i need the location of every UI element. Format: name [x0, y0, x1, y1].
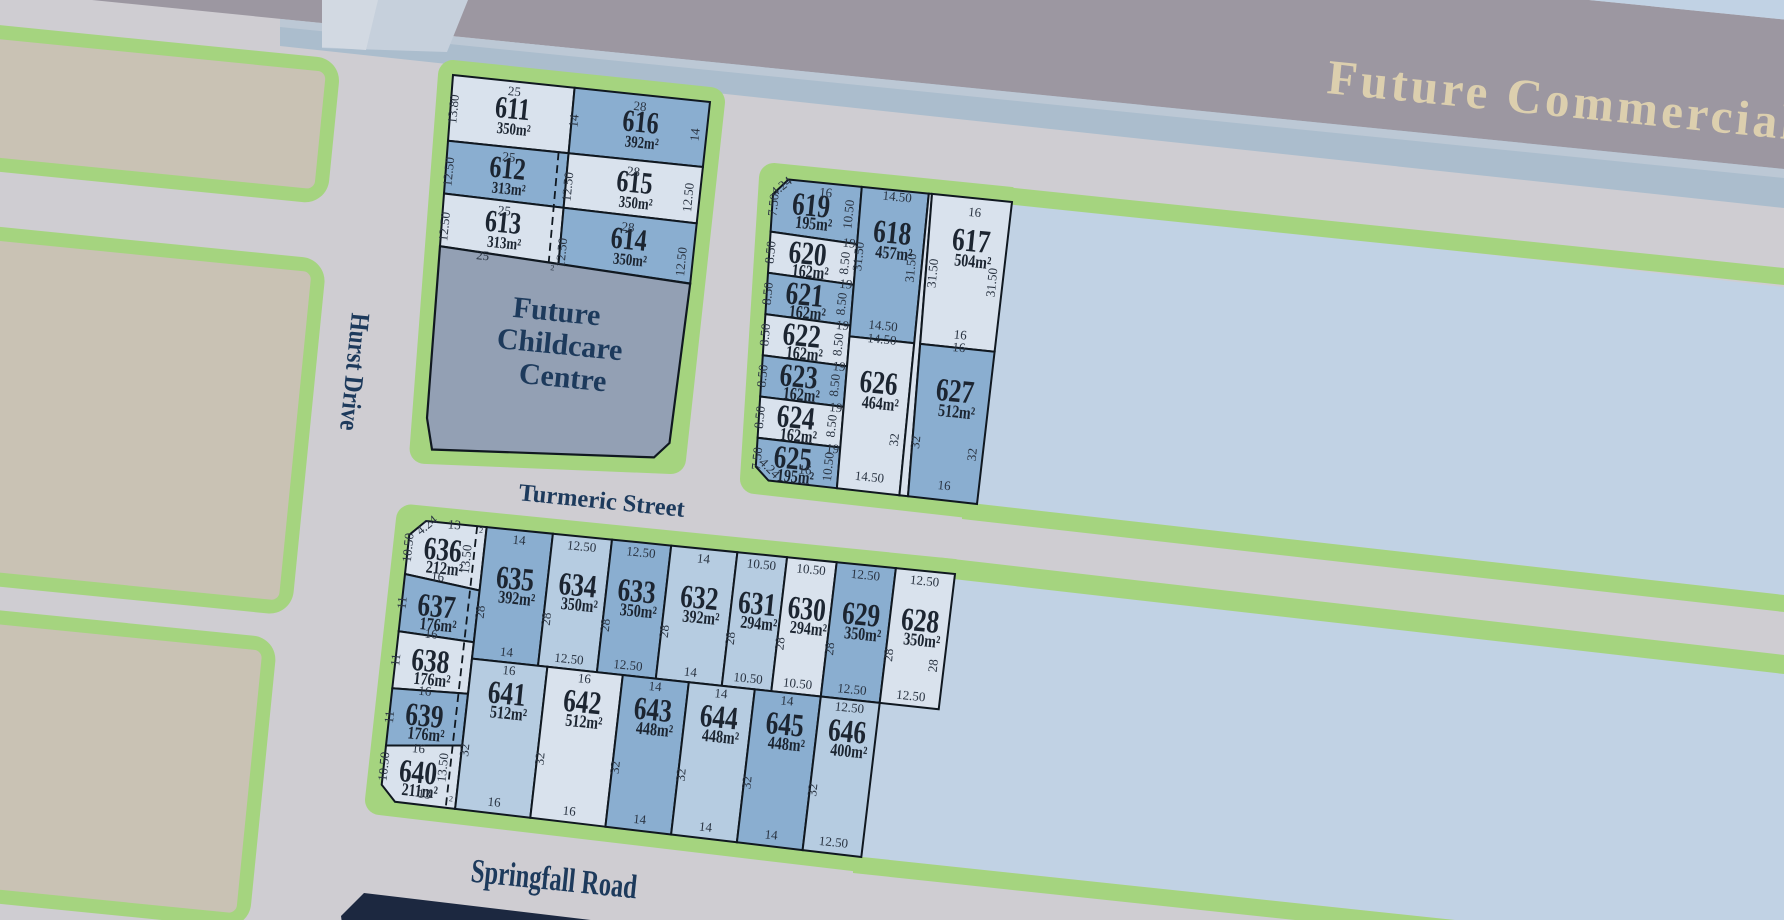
svg-text:12.50: 12.50: [909, 572, 940, 590]
svg-text:14: 14: [696, 550, 711, 566]
svg-text:350m²: 350m²: [618, 193, 654, 214]
svg-text:294m²: 294m²: [789, 618, 828, 641]
svg-text:10.50: 10.50: [782, 674, 813, 692]
svg-text:28: 28: [771, 636, 787, 650]
svg-text:448m²: 448m²: [635, 719, 674, 742]
svg-text:14: 14: [499, 644, 514, 660]
svg-text:350m²: 350m²: [902, 630, 941, 653]
svg-text:10.50: 10.50: [375, 751, 393, 782]
svg-text:28: 28: [626, 163, 640, 179]
svg-text:32: 32: [907, 435, 923, 449]
svg-text:13.80: 13.80: [444, 94, 462, 125]
svg-text:12.50: 12.50: [552, 237, 570, 268]
svg-text:14.50: 14.50: [854, 468, 885, 486]
svg-text:16: 16: [418, 683, 433, 699]
svg-text:14: 14: [714, 685, 729, 701]
svg-text:16: 16: [952, 339, 967, 355]
svg-text:12.50: 12.50: [435, 211, 453, 242]
svg-text:28: 28: [633, 98, 647, 114]
svg-text:13: 13: [447, 516, 461, 532]
svg-text:448m²: 448m²: [767, 734, 806, 757]
svg-text:28: 28: [597, 618, 613, 632]
svg-text:13: 13: [417, 786, 431, 802]
svg-text:195m²: 195m²: [794, 213, 833, 236]
svg-text:19: 19: [829, 399, 843, 415]
svg-text:14: 14: [648, 678, 663, 694]
svg-text:8.50: 8.50: [761, 240, 778, 264]
svg-text:14.50: 14.50: [882, 188, 913, 206]
svg-text:14: 14: [565, 113, 581, 128]
svg-text:12.50: 12.50: [837, 680, 868, 698]
svg-text:19: 19: [839, 276, 853, 292]
svg-text:350m²: 350m²: [619, 601, 658, 624]
svg-text:32: 32: [886, 433, 902, 447]
svg-text:28: 28: [472, 605, 488, 619]
svg-text:16: 16: [424, 626, 439, 642]
svg-text:8.50: 8.50: [829, 332, 846, 356]
svg-text:14.50: 14.50: [867, 330, 898, 348]
svg-text:313m²: 313m²: [491, 179, 527, 200]
svg-text:392m²: 392m²: [624, 133, 660, 154]
svg-text:14: 14: [687, 127, 703, 142]
svg-text:294m²: 294m²: [739, 613, 778, 636]
svg-text:16: 16: [937, 477, 952, 493]
svg-text:11: 11: [381, 710, 397, 724]
svg-text:12.50: 12.50: [554, 650, 585, 668]
svg-text:19: 19: [835, 317, 849, 333]
svg-text:8.50: 8.50: [823, 414, 840, 438]
svg-text:31.50: 31.50: [923, 258, 941, 289]
svg-text:392m²: 392m²: [681, 607, 720, 630]
svg-text:25: 25: [507, 83, 521, 99]
svg-text:13.50: 13.50: [434, 752, 452, 783]
svg-text:350m²: 350m²: [560, 594, 599, 617]
svg-text:448m²: 448m²: [701, 726, 740, 749]
svg-text:12.50: 12.50: [626, 543, 657, 561]
svg-text:12.50: 12.50: [850, 566, 881, 584]
svg-text:32: 32: [964, 447, 980, 461]
svg-text:11: 11: [394, 596, 410, 610]
svg-text:28: 28: [821, 642, 837, 656]
svg-text:8.50: 8.50: [751, 405, 768, 429]
svg-text:12.50: 12.50: [679, 182, 697, 213]
svg-text:16: 16: [819, 184, 834, 200]
svg-text:512m²: 512m²: [564, 711, 603, 734]
svg-text:12.50: 12.50: [566, 537, 597, 555]
svg-text:10.50: 10.50: [839, 199, 857, 230]
svg-text:14: 14: [633, 811, 648, 827]
svg-text:16: 16: [577, 670, 592, 686]
svg-text:31.50: 31.50: [983, 267, 1001, 298]
svg-text:10.50: 10.50: [733, 669, 764, 687]
svg-text:512m²: 512m²: [937, 401, 976, 424]
svg-text:32: 32: [456, 743, 472, 757]
svg-text:14: 14: [683, 664, 698, 680]
svg-text:28: 28: [538, 612, 554, 626]
svg-text:19: 19: [832, 358, 846, 374]
svg-text:8.50: 8.50: [833, 292, 850, 316]
svg-text:31.50: 31.50: [902, 253, 920, 284]
svg-text:350m²: 350m²: [496, 120, 532, 141]
svg-text:32: 32: [673, 768, 689, 782]
svg-text:28: 28: [925, 658, 941, 672]
svg-text:13.50: 13.50: [457, 544, 475, 575]
svg-text:8.50: 8.50: [753, 364, 770, 388]
svg-text:28: 28: [880, 648, 896, 662]
svg-text:16: 16: [562, 803, 577, 819]
svg-text:14: 14: [764, 826, 779, 842]
svg-text:12.50: 12.50: [818, 833, 849, 851]
svg-text:32: 32: [607, 760, 623, 774]
svg-text:392m²: 392m²: [497, 588, 536, 611]
svg-text:16: 16: [411, 740, 426, 756]
svg-text:14: 14: [780, 692, 795, 708]
svg-text:12.50: 12.50: [834, 698, 865, 716]
svg-text:10.50: 10.50: [746, 555, 777, 573]
svg-text:400m²: 400m²: [829, 741, 868, 764]
svg-text:25: 25: [476, 247, 490, 263]
svg-text:464m²: 464m²: [861, 393, 900, 416]
svg-text:10.50: 10.50: [796, 560, 827, 578]
svg-text:16: 16: [430, 568, 445, 584]
svg-text:11: 11: [387, 653, 403, 667]
svg-text:10.50: 10.50: [819, 451, 837, 482]
svg-text:14: 14: [512, 532, 527, 548]
svg-text:32: 32: [738, 775, 754, 789]
svg-text:350m²: 350m²: [843, 624, 882, 647]
svg-text:16: 16: [502, 662, 517, 678]
svg-text:32: 32: [531, 752, 547, 766]
svg-text:28: 28: [621, 219, 635, 235]
svg-text:32: 32: [804, 783, 820, 797]
svg-text:12.50: 12.50: [896, 687, 927, 705]
svg-text:28: 28: [722, 631, 738, 645]
svg-text:8.50: 8.50: [756, 323, 773, 347]
svg-text:12.50: 12.50: [559, 171, 577, 202]
svg-text:12.50: 12.50: [439, 156, 457, 187]
svg-text:7.50: 7.50: [764, 193, 781, 217]
svg-text:512m²: 512m²: [489, 703, 528, 726]
svg-text:12.50: 12.50: [613, 656, 644, 674]
svg-text:28: 28: [656, 624, 672, 638]
svg-text:14: 14: [698, 819, 713, 835]
svg-text:12.50: 12.50: [672, 246, 690, 277]
svg-text:16: 16: [968, 204, 983, 220]
svg-text:8.50: 8.50: [759, 281, 776, 305]
svg-text:16: 16: [798, 461, 813, 477]
svg-text:16: 16: [487, 794, 502, 810]
svg-text:10.50: 10.50: [399, 532, 417, 563]
svg-text:25: 25: [502, 149, 516, 165]
svg-text:8.50: 8.50: [826, 373, 843, 397]
svg-text:31.50: 31.50: [849, 241, 867, 272]
svg-text:350m²: 350m²: [612, 250, 648, 271]
svg-text:313m²: 313m²: [486, 233, 522, 254]
svg-text:25: 25: [497, 202, 511, 218]
